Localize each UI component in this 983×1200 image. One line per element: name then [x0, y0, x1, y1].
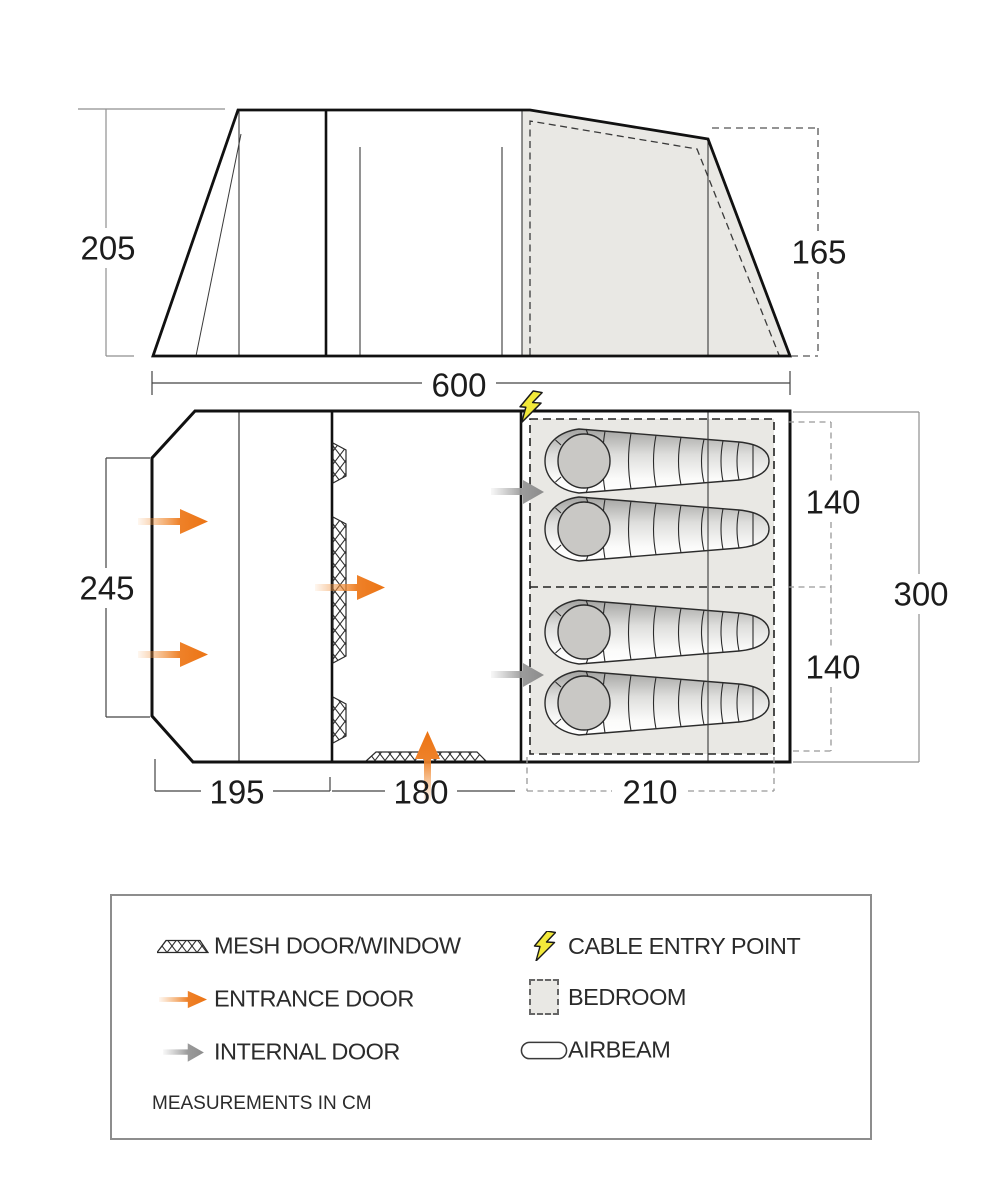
mesh-door-window-icon — [152, 939, 214, 953]
legend-label: AIRBEAM — [568, 1037, 670, 1064]
dim-bedroom-upper: 140 — [805, 484, 860, 521]
dim-porch-section: 195 — [209, 774, 264, 811]
dim-bedroom-section: 210 — [622, 774, 677, 811]
legend-label: CABLE ENTRY POINT — [568, 933, 800, 960]
tent-side-elevation: 205 165 600 — [78, 109, 847, 404]
dim-bedroom-lower: 140 — [805, 649, 860, 686]
dim-front-height: 205 — [80, 230, 135, 267]
dim-front-width: 245 — [79, 570, 134, 607]
measurements-note: MEASUREMENTS IN CM — [152, 1093, 372, 1115]
tent-floor-plan: 245 195 180 210 140 140 300 — [79, 391, 948, 811]
legend-label: INTERNAL DOOR — [214, 1039, 400, 1066]
airbeam-icon — [520, 1040, 568, 1060]
elevation-bedroom-shading — [522, 110, 790, 356]
legend-label: MESH DOOR/WINDOW — [214, 933, 461, 960]
legend-item-bedroom: BEDROOM — [520, 979, 686, 1015]
legend-item-airbeam: AIRBEAM — [520, 1037, 670, 1064]
legend-item-internal-door: INTERNAL DOOR — [152, 1039, 400, 1066]
legend-panel: MESH DOOR/WINDOW ENTRANCE DOOR INTERNAL … — [110, 894, 872, 1140]
legend-item-mesh-door-window: MESH DOOR/WINDOW — [152, 933, 461, 960]
legend-label: BEDROOM — [568, 984, 686, 1011]
legend-label: ENTRANCE DOOR — [214, 986, 414, 1013]
tent-specification-diagram: 205 165 600 — [0, 0, 983, 1200]
dim-total-width: 300 — [893, 576, 948, 613]
legend-item-cable-entry: CABLE ENTRY POINT — [520, 931, 800, 961]
dim-140-lines — [788, 422, 831, 751]
entrance-door-icon — [152, 989, 214, 1009]
legend-item-entrance-door: ENTRANCE DOOR — [152, 986, 414, 1013]
cable-entry-point-icon — [520, 931, 568, 961]
internal-door-icon — [152, 1042, 214, 1062]
dim-living-section: 180 — [393, 774, 448, 811]
bedroom-icon — [520, 979, 568, 1015]
dim-total-length: 600 — [431, 367, 486, 404]
dim-rear-height: 165 — [791, 234, 846, 271]
